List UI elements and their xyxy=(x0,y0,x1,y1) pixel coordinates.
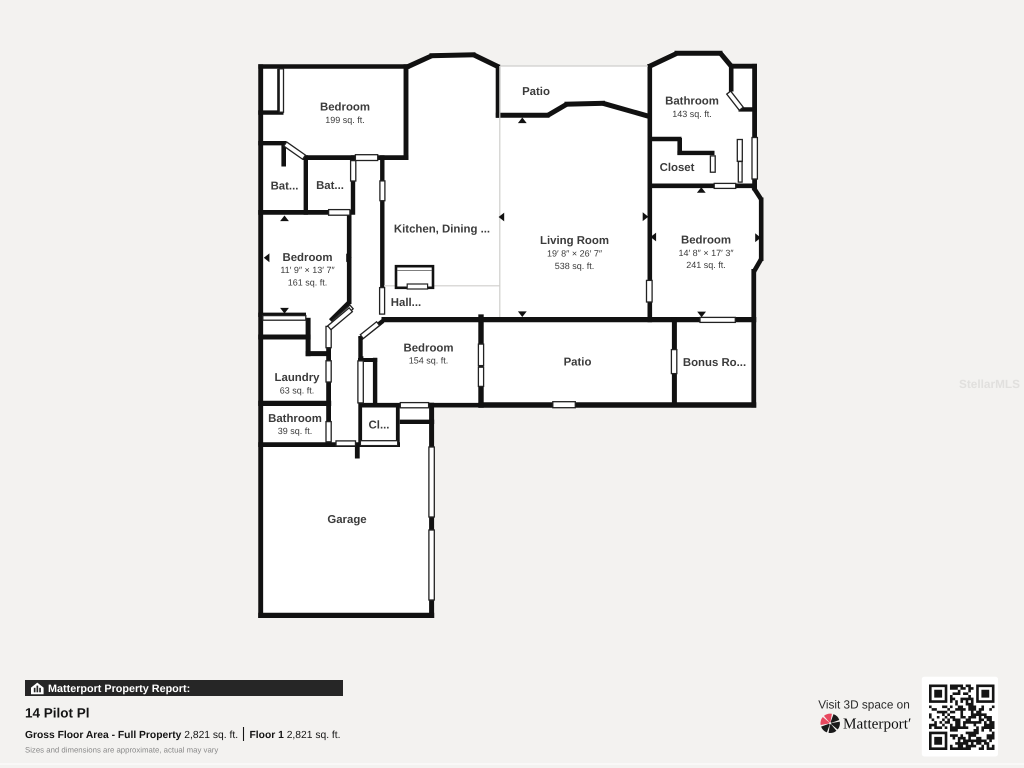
svg-text:Bonus Ro...: Bonus Ro... xyxy=(683,357,746,369)
svg-text:StellarMLS: StellarMLS xyxy=(959,377,1020,391)
svg-text:Kitchen, Dining ...: Kitchen, Dining ... xyxy=(394,223,490,235)
svg-text:Bat...: Bat... xyxy=(316,180,344,192)
svg-text:Bat...: Bat... xyxy=(271,181,299,193)
svg-text:143 sq. ft.: 143 sq. ft. xyxy=(672,109,712,119)
svg-text:Patio: Patio xyxy=(564,356,592,368)
svg-text:63 sq. ft.: 63 sq. ft. xyxy=(280,386,315,396)
svg-text:Sizes and dimensions are appro: Sizes and dimensions are approximate, ac… xyxy=(25,746,218,755)
svg-text:Bedroom: Bedroom xyxy=(404,343,454,355)
svg-text:Bedroom: Bedroom xyxy=(681,234,731,246)
svg-text:Bathroom: Bathroom xyxy=(665,96,719,108)
svg-text:161 sq. ft.: 161 sq. ft. xyxy=(288,277,328,287)
svg-text:14 Pilot Pl: 14 Pilot Pl xyxy=(25,706,90,721)
svg-text:154 sq. ft.: 154 sq. ft. xyxy=(409,356,449,366)
svg-text:Patio: Patio xyxy=(522,86,550,98)
svg-text:Bedroom: Bedroom xyxy=(320,102,370,114)
svg-text:199 sq. ft.: 199 sq. ft. xyxy=(325,115,365,125)
svg-text:Floor 1 2,821 sq. ft.: Floor 1 2,821 sq. ft. xyxy=(250,730,341,741)
svg-text:Bathroom: Bathroom xyxy=(268,413,322,425)
svg-text:Hall...: Hall... xyxy=(391,297,421,309)
svg-text:241 sq. ft.: 241 sq. ft. xyxy=(686,260,726,270)
svg-text:Matterport Property Report:: Matterport Property Report: xyxy=(48,683,190,695)
svg-text:Cl...: Cl... xyxy=(369,419,390,431)
svg-text:538 sq. ft.: 538 sq. ft. xyxy=(555,261,595,271)
svg-text:Gross Floor Area - Full Proper: Gross Floor Area - Full Property 2,821 s… xyxy=(25,730,238,741)
svg-text:Laundry: Laundry xyxy=(275,372,321,384)
svg-text:Garage: Garage xyxy=(327,514,366,526)
svg-text:Closet: Closet xyxy=(660,162,695,174)
svg-text:Visit 3D space on: Visit 3D space on xyxy=(818,698,910,712)
svg-text:Living Room: Living Room xyxy=(540,235,609,247)
svg-text:14′ 8″ × 17′ 3″: 14′ 8″ × 17′ 3″ xyxy=(678,248,734,258)
svg-text:39 sq. ft.: 39 sq. ft. xyxy=(278,426,313,436)
svg-text:19′ 8″ × 26′ 7″: 19′ 8″ × 26′ 7″ xyxy=(547,248,603,258)
svg-text:Matterport′: Matterport′ xyxy=(843,716,911,733)
svg-text:11′ 9″ × 13′ 7″: 11′ 9″ × 13′ 7″ xyxy=(280,265,335,275)
svg-text:Bedroom: Bedroom xyxy=(283,252,333,264)
